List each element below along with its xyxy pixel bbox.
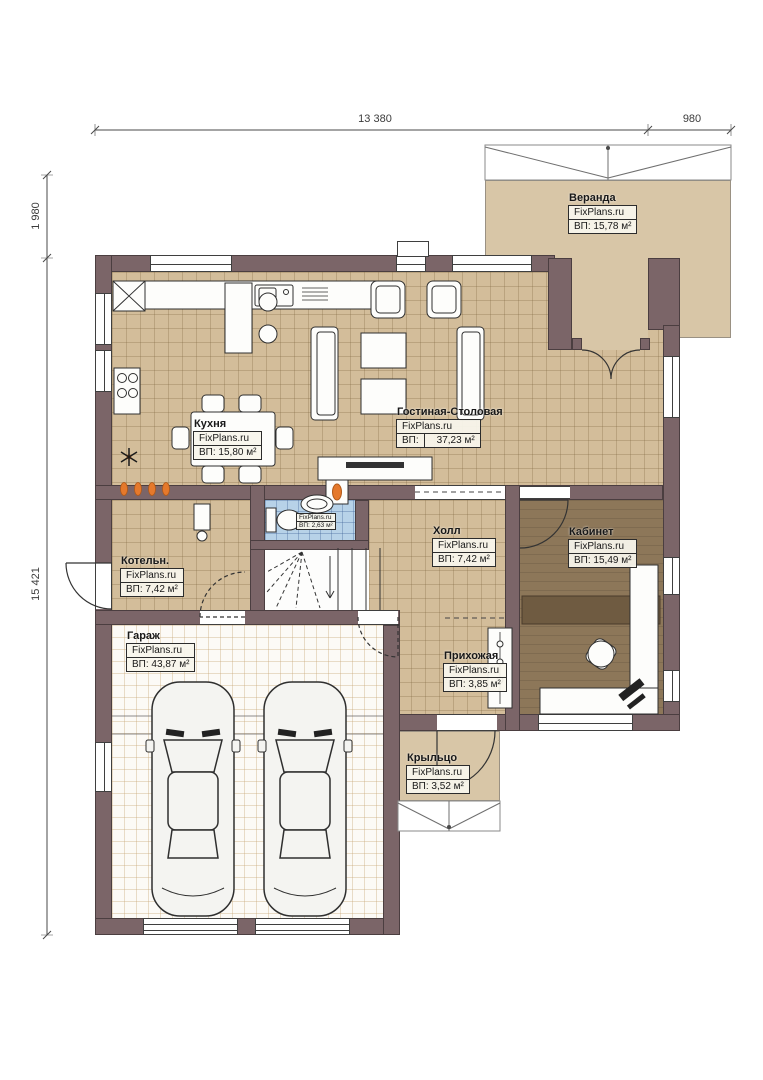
wall-garage-bottom bbox=[95, 918, 400, 935]
room-area: ВП: 3,85 м² bbox=[444, 677, 506, 691]
room-name: Гараж bbox=[127, 630, 195, 642]
room-name: Веранда bbox=[569, 192, 637, 204]
door-opening-study bbox=[520, 486, 570, 499]
floor-plan: 13 380 980 1 980 15 421 Веранда FixPlans… bbox=[0, 0, 763, 1080]
room-area-label: ВП: bbox=[397, 434, 424, 447]
label-garage: Гараж FixPlans.ru ВП: 43,87 м² bbox=[126, 630, 195, 672]
wall-garage-right bbox=[383, 625, 400, 935]
porch-steps bbox=[398, 801, 500, 831]
passage-living-hall bbox=[415, 485, 505, 500]
window-study-right2 bbox=[663, 670, 680, 702]
room-area: ВП: 15,80 м² bbox=[194, 445, 261, 459]
wall-garage-top bbox=[95, 610, 400, 625]
brand-watermark: FixPlans.ru bbox=[444, 664, 506, 677]
brand-watermark: FixPlans.ru bbox=[121, 569, 183, 582]
veranda-steps bbox=[485, 145, 731, 180]
window-living-small bbox=[396, 255, 426, 272]
label-bathroom: FixPlans.ru ВП: 2,63 м² bbox=[296, 513, 336, 530]
brand-watermark: FixPlans.ru bbox=[127, 644, 194, 657]
alcove-floor bbox=[572, 262, 648, 350]
label-study: Кабинет FixPlans.ru ВП: 15,49 м² bbox=[568, 526, 637, 568]
wall-alcove-right bbox=[648, 258, 680, 330]
chimney-vent bbox=[397, 241, 429, 257]
wall-hall-study bbox=[505, 485, 520, 731]
dim-top-right: 980 bbox=[670, 113, 714, 125]
wall-alcove-stub-right bbox=[640, 338, 650, 350]
window-kitchen-left2 bbox=[95, 350, 112, 392]
label-boiler: Котельн. FixPlans.ru ВП: 7,42 м² bbox=[120, 555, 184, 597]
dim-left-upper: 1 980 bbox=[30, 194, 42, 238]
brand-watermark: FixPlans.ru bbox=[194, 432, 261, 445]
label-veranda: Веранда FixPlans.ru ВП: 15,78 м² bbox=[568, 192, 637, 234]
room-area: ВП: 43,87 м² bbox=[127, 657, 194, 671]
label-kitchen: Кухня FixPlans.ru ВП: 15,80 м² bbox=[193, 418, 262, 460]
window-garage-left bbox=[95, 742, 112, 792]
wall-alcove-left bbox=[548, 258, 572, 350]
label-hall: Холл FixPlans.ru ВП: 7,42 м² bbox=[432, 525, 496, 567]
door-opening-hall-garage bbox=[358, 610, 398, 625]
room-name: Гостиная-Столовая bbox=[397, 406, 503, 418]
room-name: Холл bbox=[433, 525, 496, 537]
room-area: ВП: 15,78 м² bbox=[569, 219, 636, 233]
room-name: Кухня bbox=[194, 418, 262, 430]
room-name: Кабинет bbox=[569, 526, 637, 538]
door-opening-boiler-garage bbox=[200, 610, 245, 625]
brand-watermark: FixPlans.ru bbox=[569, 540, 636, 553]
label-living: Гостиная-Столовая FixPlans.ru ВП: 37,23 … bbox=[396, 406, 503, 448]
door-opening-entrance bbox=[437, 714, 497, 731]
dim-left-main: 15 421 bbox=[30, 559, 42, 609]
garage-door-2 bbox=[255, 918, 350, 935]
room-area: ВП: 7,42 м² bbox=[433, 552, 495, 566]
brand-watermark: FixPlans.ru bbox=[569, 206, 636, 219]
brand-watermark: FixPlans.ru bbox=[297, 514, 335, 521]
label-hallway: Прихожая FixPlans.ru ВП: 3,85 м² bbox=[443, 650, 507, 692]
room-name: Крыльцо bbox=[407, 752, 470, 764]
door-opening-boiler bbox=[95, 563, 112, 609]
wall-alcove-stub-left bbox=[572, 338, 582, 350]
wall-boiler-right bbox=[250, 485, 265, 625]
dim-top-main: 13 380 bbox=[345, 113, 405, 125]
room-area-value: 37,23 м² bbox=[424, 434, 480, 447]
room-name: Котельн. bbox=[121, 555, 184, 567]
room-area: ВП: 7,42 м² bbox=[121, 582, 183, 596]
brand-watermark: FixPlans.ru bbox=[397, 420, 480, 433]
room-area: ВП: 3,52 м² bbox=[407, 779, 469, 793]
window-living-right bbox=[663, 356, 680, 418]
room-name: Прихожая bbox=[444, 650, 507, 662]
wall-mid-horizontal bbox=[95, 485, 663, 500]
label-porch: Крыльцо FixPlans.ru ВП: 3,52 м² bbox=[406, 752, 470, 794]
room-area: ВП: 2,63 м² bbox=[297, 521, 335, 529]
window-study-bottom bbox=[538, 714, 633, 731]
window-study-right bbox=[663, 557, 680, 595]
room-area: ВП: 15,49 м² bbox=[569, 553, 636, 567]
window-living-top bbox=[452, 255, 532, 272]
window-kitchen-left bbox=[95, 293, 112, 345]
brand-watermark: FixPlans.ru bbox=[407, 766, 469, 779]
garage-door-1 bbox=[143, 918, 238, 935]
brand-watermark: FixPlans.ru bbox=[433, 539, 495, 552]
window-kitchen-top bbox=[150, 255, 232, 272]
wall-bath-bottom bbox=[250, 540, 369, 550]
